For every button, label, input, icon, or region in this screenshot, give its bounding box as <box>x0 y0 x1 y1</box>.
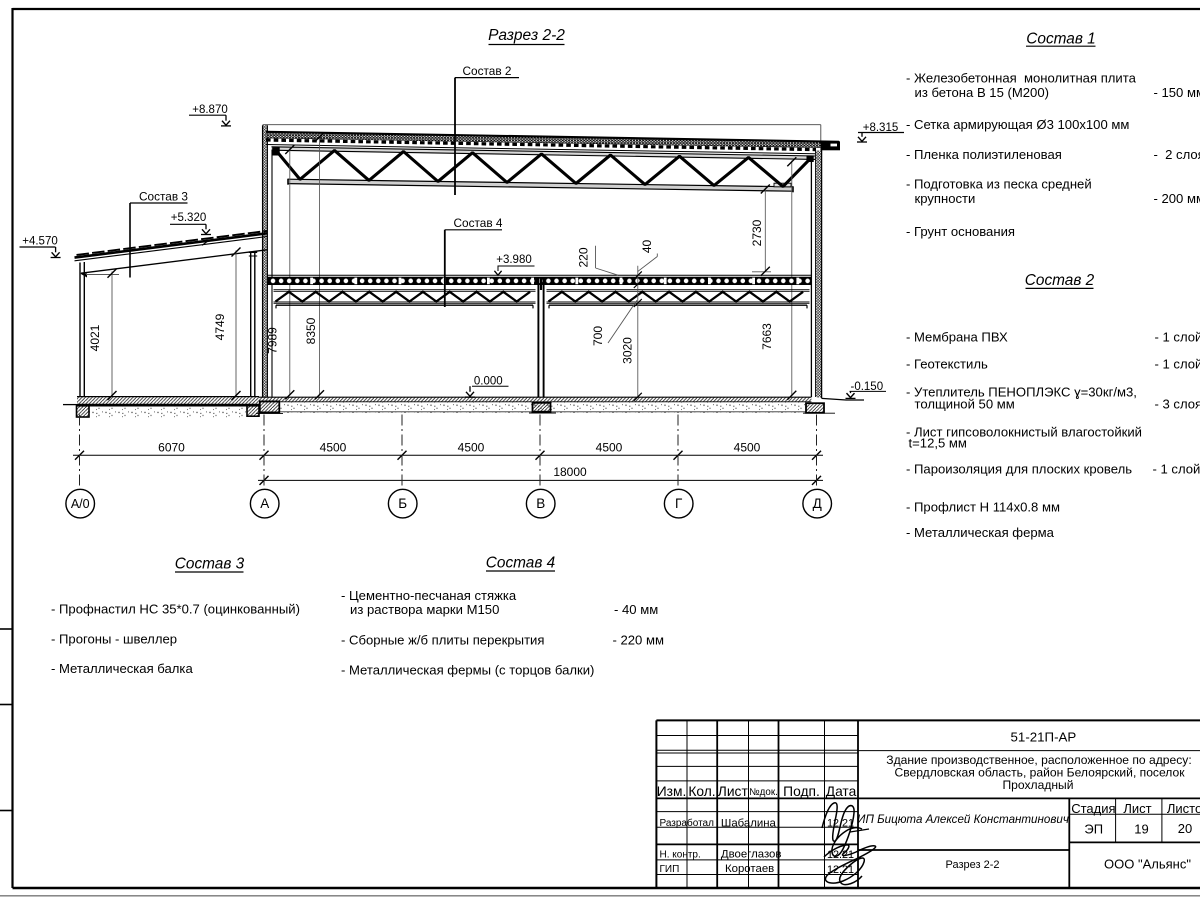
svg-text:4500: 4500 <box>596 440 623 454</box>
svg-text:из бетона В 15 (М200): из бетона В 15 (М200) <box>915 85 1050 100</box>
svg-text:- Сборные ж/б плиты перекрытия: - Сборные ж/б плиты перекрытия <box>341 632 544 647</box>
svg-text:- 1 слой: - 1 слой <box>1155 357 1200 372</box>
svg-text:Лист: Лист <box>1123 801 1151 816</box>
svg-text:7989: 7989 <box>266 327 280 354</box>
svg-text:- Прогоны - швеллер: - Прогоны - швеллер <box>51 632 177 647</box>
svg-text:- 40 мм: - 40 мм <box>614 602 658 617</box>
svg-text:- 1 слой: - 1 слой <box>1153 462 1200 477</box>
svg-text:- Подготовка из песка средней: - Подготовка из песка средней <box>906 177 1092 192</box>
svg-text:20: 20 <box>1178 821 1192 836</box>
svg-text:Дата: Дата <box>826 784 857 799</box>
svg-text:Листов: Листов <box>1167 801 1200 816</box>
svg-text:+5.320: +5.320 <box>171 212 207 224</box>
svg-text:Разработал: Разработал <box>660 817 715 829</box>
svg-text:Состав 1: Состав 1 <box>1026 31 1095 48</box>
svg-text:7663: 7663 <box>760 323 774 350</box>
svg-text:4749: 4749 <box>213 313 227 340</box>
svg-text:- Профлист Н 114х0.8 мм: - Профлист Н 114х0.8 мм <box>906 500 1060 515</box>
svg-text:- Металлическая фермы (с торцо: - Металлическая фермы (с торцов балки) <box>341 663 594 678</box>
svg-text:4500: 4500 <box>320 440 347 454</box>
svg-text:- Сетка армирующая Ø3 100х100: - Сетка армирующая Ø3 100х100 мм <box>906 117 1129 132</box>
svg-text:Б: Б <box>398 496 407 511</box>
svg-text:19: 19 <box>1134 822 1148 837</box>
svg-text:4500: 4500 <box>734 440 761 454</box>
svg-text:ГИП: ГИП <box>660 864 680 875</box>
svg-text:Н. контр.: Н. контр. <box>660 849 701 860</box>
svg-text:- Пароизоляция для плоских кро: - Пароизоляция для плоских кровель <box>906 462 1132 477</box>
svg-text:№док.: №док. <box>749 787 778 798</box>
svg-text:- 150 мм: - 150 мм <box>1154 85 1200 100</box>
svg-text:51-21П-АР: 51-21П-АР <box>1011 730 1077 745</box>
svg-text:Шабалина: Шабалина <box>721 817 777 829</box>
svg-text:ИП Бицюта Алексей Константинов: ИП Бицюта Алексей Константинович <box>857 813 1069 826</box>
svg-text:В: В <box>536 496 545 511</box>
svg-text:Подп.: Подп. <box>783 784 820 799</box>
svg-text:крупности: крупности <box>915 191 976 206</box>
svg-text:- Пленка полиэтиленовая: - Пленка полиэтиленовая <box>906 147 1062 162</box>
svg-text:ООО "Альянс": ООО "Альянс" <box>1104 856 1191 871</box>
svg-text:Двоеглазов: Двоеглазов <box>721 849 782 861</box>
svg-text:+4.570: +4.570 <box>22 235 58 247</box>
svg-text:- Металлическая ферма: - Металлическая ферма <box>906 525 1055 540</box>
svg-text:8350: 8350 <box>304 317 318 344</box>
svg-text:- Цементно-песчаная стяжка: - Цементно-песчаная стяжка <box>341 588 517 603</box>
svg-text:- Металлическая балка: - Металлическая балка <box>51 661 193 676</box>
svg-text:А/0: А/0 <box>71 497 90 511</box>
svg-text:Состав 3: Состав 3 <box>139 189 188 203</box>
svg-text:толщиной 50 мм: толщиной 50 мм <box>915 396 1015 411</box>
svg-text:Разрез 2-2: Разрез 2-2 <box>488 27 565 44</box>
svg-text:2730: 2730 <box>750 219 764 246</box>
svg-text:18000: 18000 <box>553 465 587 479</box>
svg-text:- 2 слоя: - 2 слоя <box>1154 147 1200 162</box>
svg-text:+3.980: +3.980 <box>496 254 532 266</box>
svg-text:ЭП: ЭП <box>1084 822 1103 837</box>
svg-text:- 200 мм: - 200 мм <box>1154 191 1200 206</box>
svg-text:3020: 3020 <box>621 337 635 364</box>
svg-text:Лист: Лист <box>718 784 749 799</box>
svg-text:+8.870: +8.870 <box>192 104 228 116</box>
svg-text:Стадия: Стадия <box>1071 801 1115 816</box>
svg-text:40: 40 <box>640 240 654 254</box>
svg-text:- 220 мм: - 220 мм <box>613 632 665 647</box>
svg-text:Состав 4: Состав 4 <box>454 216 503 230</box>
svg-text:6070: 6070 <box>158 440 185 454</box>
svg-text:- Железобетонная монолитная п: - Железобетонная монолитная плита <box>906 70 1137 85</box>
svg-text:А: А <box>260 496 269 511</box>
svg-text:- Профнастил НС 35*0.7 (оцинко: - Профнастил НС 35*0.7 (оцинкованный) <box>51 602 300 617</box>
svg-text:- Мембрана ПВХ: - Мембрана ПВХ <box>906 330 1008 345</box>
svg-text:4021: 4021 <box>88 324 102 351</box>
svg-text:4500: 4500 <box>458 440 485 454</box>
svg-text:Изм.: Изм. <box>657 784 687 799</box>
svg-text:t=12,5 мм: t=12,5 мм <box>909 436 967 451</box>
svg-text:- Геотекстиль: - Геотекстиль <box>906 357 988 372</box>
svg-text:Кол.: Кол. <box>688 784 715 799</box>
svg-text:Состав 4: Состав 4 <box>486 555 555 572</box>
svg-text:- 3 слоя: - 3 слоя <box>1155 396 1200 411</box>
svg-text:700: 700 <box>591 326 605 346</box>
svg-text:Прохладный: Прохладный <box>1002 778 1073 792</box>
svg-text:Г: Г <box>675 496 683 511</box>
svg-text:Коротаев: Коротаев <box>725 863 774 875</box>
svg-text:- 1 слой: - 1 слой <box>1155 330 1200 345</box>
svg-text:- Грунт основания: - Грунт основания <box>906 224 1015 239</box>
svg-text:220: 220 <box>577 247 591 267</box>
svg-text:Состав 2: Состав 2 <box>463 64 512 78</box>
svg-text:Разрез 2-2: Разрез 2-2 <box>945 859 999 871</box>
svg-text:Состав 3: Состав 3 <box>175 556 245 573</box>
svg-text:Состав 2: Состав 2 <box>1025 272 1095 289</box>
svg-text:из раствора марки М150: из раствора марки М150 <box>350 602 499 617</box>
svg-text:Д: Д <box>813 496 822 511</box>
